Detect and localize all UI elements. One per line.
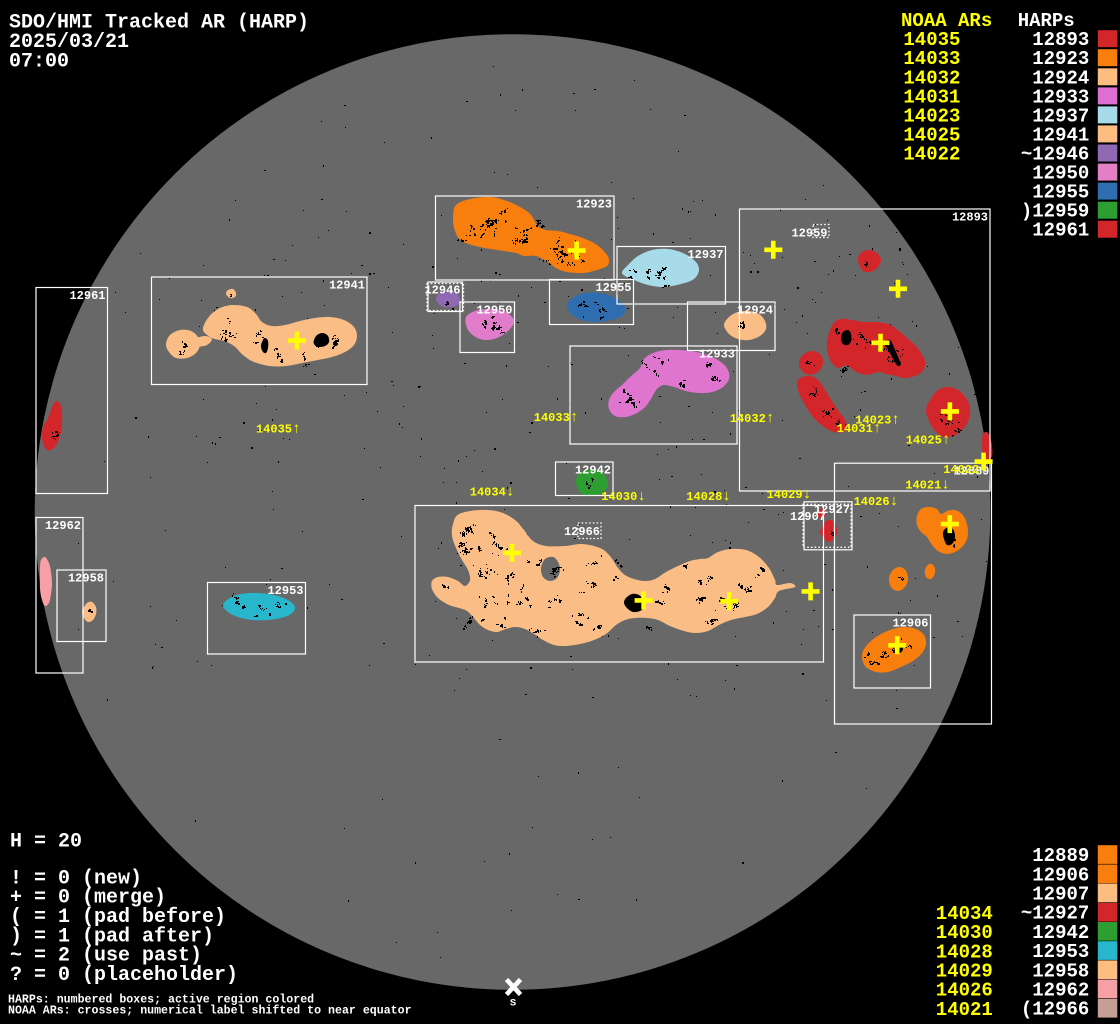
- svg-text:07:00: 07:00: [9, 50, 69, 73]
- svg-text:14022↑: 14022↑: [943, 462, 988, 478]
- svg-text:14021↓: 14021↓: [905, 477, 950, 493]
- svg-text:14030↓: 14030↓: [601, 489, 646, 505]
- svg-text:12937: 12937: [687, 248, 723, 262]
- svg-text:14022: 14022: [903, 144, 960, 166]
- svg-text:12946: 12946: [424, 283, 460, 297]
- svg-text:12950: 12950: [476, 303, 512, 317]
- svg-text:14031↑: 14031↑: [837, 421, 882, 437]
- svg-text:12923: 12923: [576, 197, 612, 211]
- svg-text:12893: 12893: [952, 210, 988, 224]
- svg-text:NOAA ARs: crosses; numerical l: NOAA ARs: crosses; numerical label shift…: [8, 1005, 412, 1018]
- svg-text:12924: 12924: [737, 303, 773, 317]
- svg-text:12942: 12942: [575, 463, 611, 477]
- svg-text:14021: 14021: [936, 999, 993, 1021]
- svg-text:12941: 12941: [329, 278, 365, 292]
- svg-text:12961: 12961: [1032, 220, 1089, 242]
- svg-text:12933: 12933: [699, 347, 735, 361]
- svg-text:S: S: [510, 998, 516, 1010]
- svg-text:14029↓: 14029↓: [767, 487, 812, 503]
- svg-text:12959: 12959: [791, 227, 827, 241]
- svg-text:12953: 12953: [267, 584, 303, 598]
- svg-text:14033↑: 14033↑: [534, 410, 579, 426]
- svg-text:? = 0 (placeholder): ? = 0 (placeholder): [10, 964, 238, 987]
- svg-text:14034↓: 14034↓: [470, 485, 515, 501]
- svg-text:12962: 12962: [45, 519, 81, 533]
- svg-text:12906: 12906: [892, 616, 928, 630]
- svg-text:H = 20: H = 20: [10, 831, 82, 854]
- svg-text:(12966: (12966: [1021, 999, 1089, 1021]
- svg-text:12958: 12958: [68, 571, 104, 585]
- svg-text:12961: 12961: [69, 289, 105, 303]
- svg-text:14028↓: 14028↓: [686, 489, 731, 505]
- svg-text:14026↓: 14026↓: [854, 494, 899, 510]
- svg-text:12907: 12907: [790, 510, 826, 524]
- svg-text:14032↑: 14032↑: [730, 411, 775, 427]
- svg-text:14035↑: 14035↑: [256, 422, 301, 438]
- svg-text:14025↑: 14025↑: [906, 433, 951, 449]
- svg-text:12966: 12966: [564, 525, 600, 539]
- svg-text:12955: 12955: [595, 281, 631, 295]
